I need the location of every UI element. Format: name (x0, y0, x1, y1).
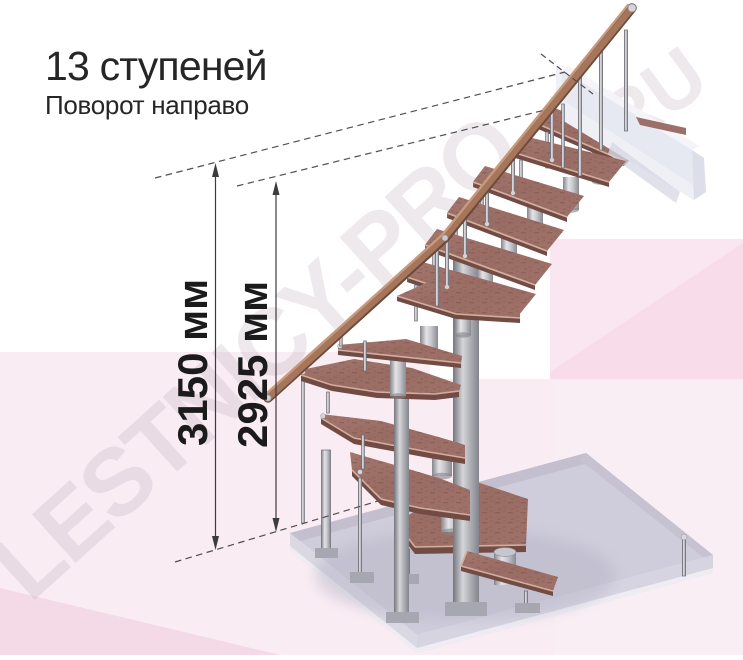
svg-text:Поворот направо: Поворот направо (45, 90, 249, 120)
svg-text:3150 мм: 3150 мм (169, 279, 216, 446)
svg-text:13 ступеней: 13 ступеней (45, 43, 267, 89)
svg-text:2925 мм: 2925 мм (229, 281, 276, 448)
